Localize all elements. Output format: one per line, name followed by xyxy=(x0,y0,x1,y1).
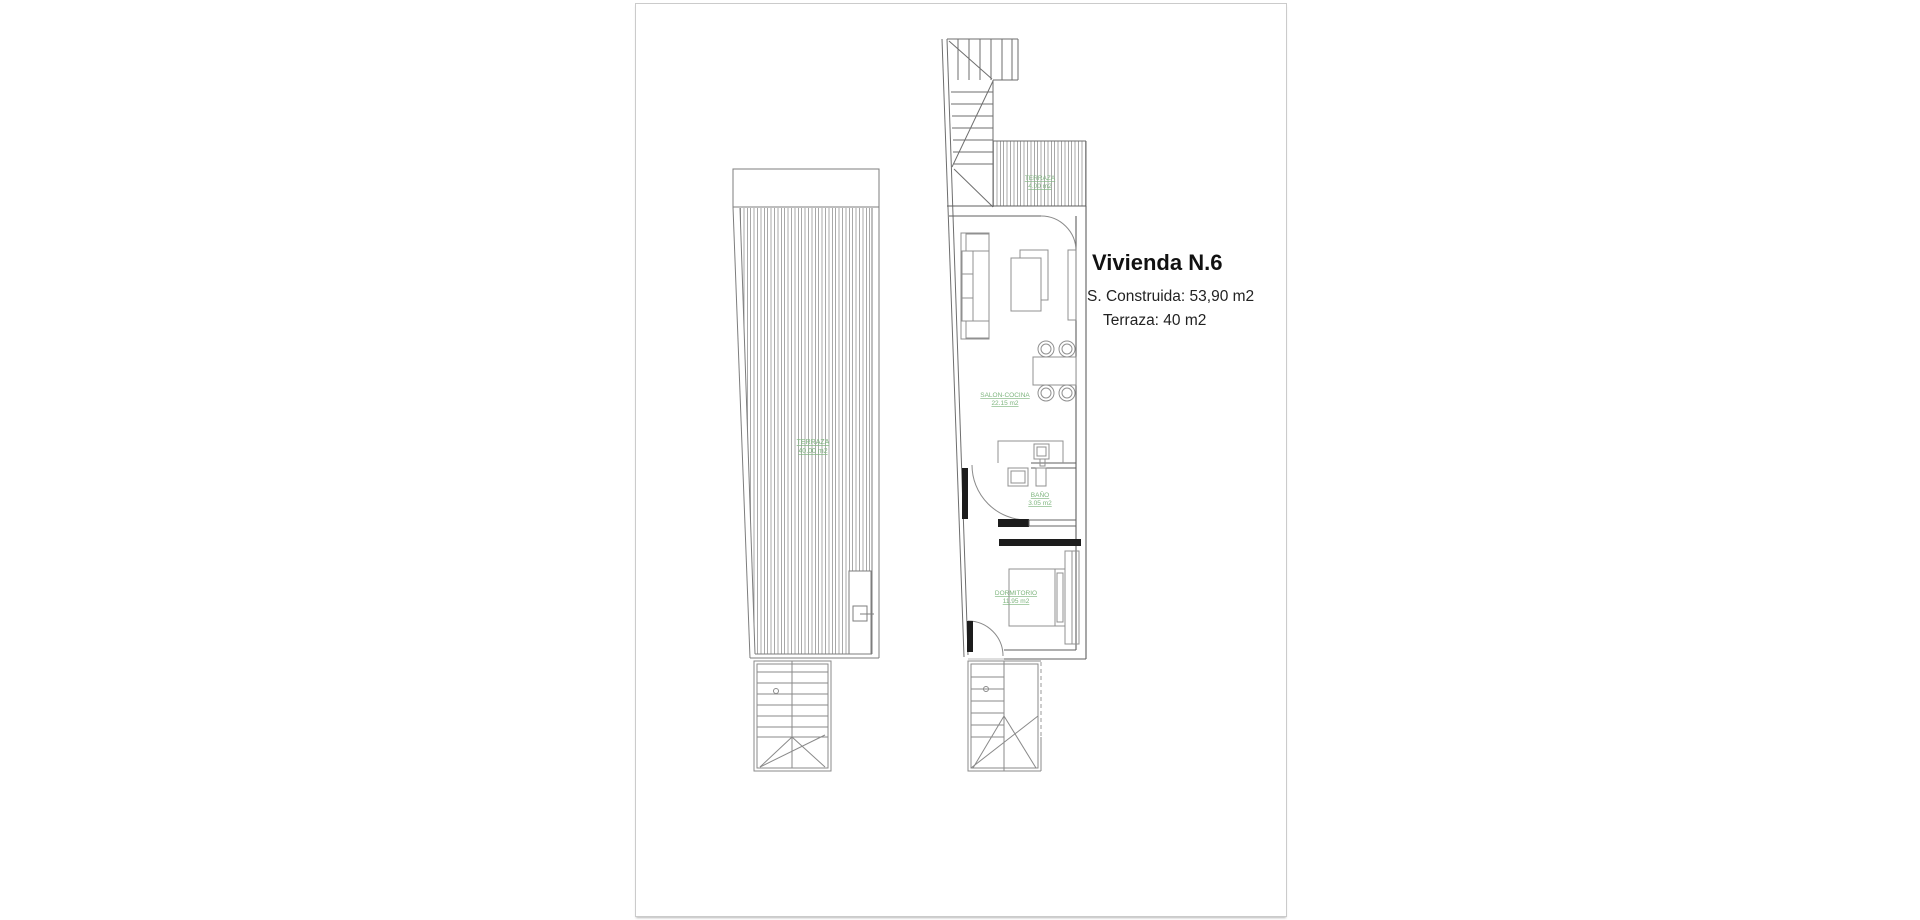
bathroom-label: BAÑO xyxy=(1031,490,1049,499)
drawing-sheet: TERRAZA 40.00 m2 TERRAZA 4.00 m2 SALON-C… xyxy=(0,0,1920,920)
living-room-label: SALON-COCINA xyxy=(980,392,1030,399)
built-area-text: S. Construida: 53,90 m2 xyxy=(1087,285,1254,309)
dwelling-info-block: Vivienda N.6 S. Construida: 53,90 m2 Ter… xyxy=(1087,249,1254,333)
plan-page: TERRAZA 40.00 m2 TERRAZA 4.00 m2 SALON-C… xyxy=(635,3,1287,917)
right-plan-bottom-stairs xyxy=(968,661,1041,771)
left-terrace-area: 40.00 m2 xyxy=(798,448,827,455)
right-plan-top-stairs xyxy=(942,39,1086,657)
bedroom-area: 11.95 m2 xyxy=(1003,598,1030,605)
terrace-area-text: Terraza: 40 m2 xyxy=(1103,309,1254,333)
right-plan-thick-walls xyxy=(962,468,1081,652)
floor-plan-drawing: TERRAZA 40.00 m2 TERRAZA 4.00 m2 SALON-C… xyxy=(636,4,1286,916)
left-plan-stairs xyxy=(754,661,831,771)
living-room-area: 22.15 m2 xyxy=(991,400,1018,407)
dwelling-title: Vivienda N.6 xyxy=(1092,249,1254,277)
bedroom-label: DORMITORIO xyxy=(995,590,1037,597)
right-plan-furniture xyxy=(961,233,1079,644)
right-terrace-label: TERRAZA xyxy=(1025,175,1056,182)
left-plan-linework xyxy=(733,169,879,658)
left-terrace-label: TERRAZA xyxy=(797,439,830,446)
bathroom-area: 3.05 m2 xyxy=(1028,500,1052,507)
right-terrace-area: 4.00 m2 xyxy=(1028,183,1052,190)
